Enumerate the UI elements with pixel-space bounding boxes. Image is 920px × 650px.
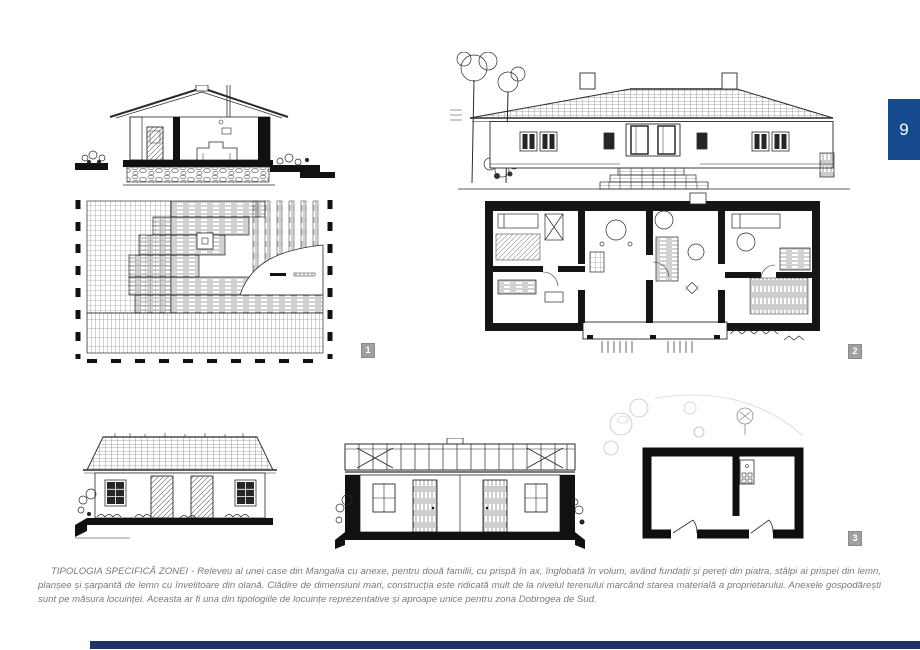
figure-4-annex-section (335, 438, 585, 550)
figure-2-elevation-and-plan (450, 52, 875, 360)
elevation-drawing (450, 52, 875, 360)
figure-badge-1: 1 (361, 343, 375, 358)
vegetation-right (277, 154, 309, 165)
page-number-tab: 9 (888, 99, 920, 160)
annex-section-drawing (335, 438, 585, 550)
porch-steps (602, 341, 692, 353)
page-number: 9 (899, 120, 908, 140)
footer-bar (90, 641, 920, 649)
plan-drawing (78, 200, 330, 361)
porch-doors (626, 124, 680, 156)
figure-1-section-and-plan (75, 85, 335, 363)
floor-plan (489, 193, 816, 353)
figure-3-annex-elevation (75, 430, 290, 550)
entry-steps (600, 168, 708, 189)
vegetation-left (82, 151, 105, 164)
section-drawing (75, 85, 335, 363)
figure-badge-3: 3 (848, 531, 862, 546)
caption-lead: TIPOLOGIA SPECIFICĂ ZONEI (51, 566, 188, 577)
annex-plan-drawing (595, 390, 810, 545)
figure-5-annex-plan (595, 390, 810, 545)
annex-elevation-drawing (75, 430, 290, 550)
pencil-sketches (604, 395, 803, 455)
figure-badge-2: 2 (848, 344, 862, 359)
caption: TIPOLOGIA SPECIFICĂ ZONEI - Releveu al u… (38, 565, 881, 608)
